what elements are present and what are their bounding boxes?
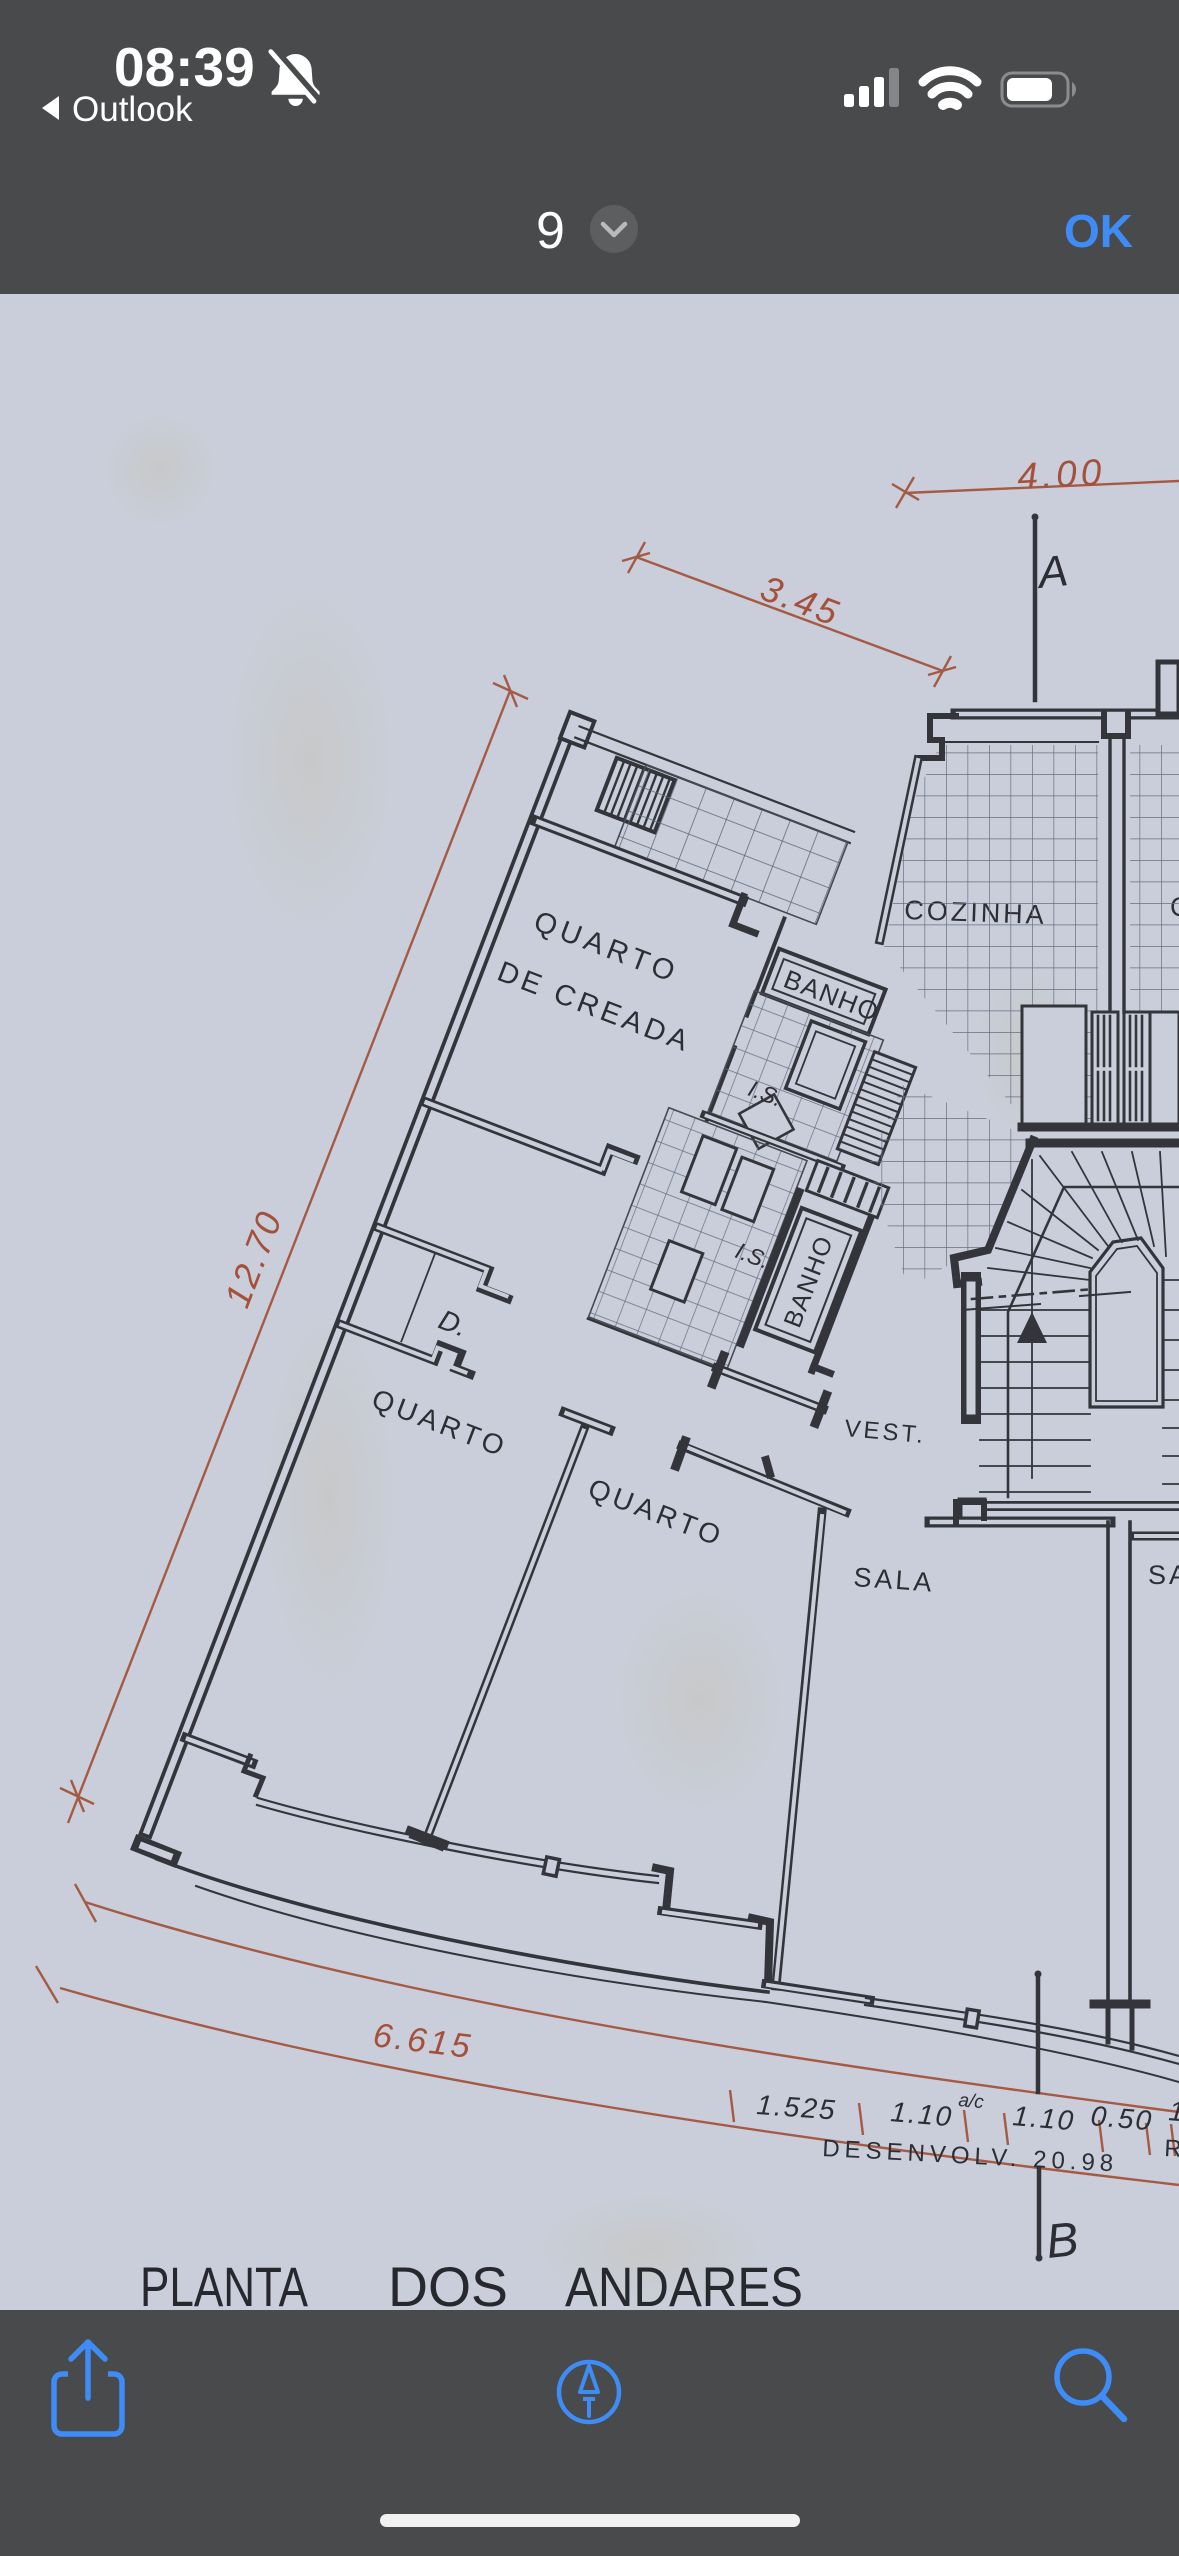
svg-text:ANDARES: ANDARES <box>565 2255 803 2318</box>
svg-text:DOS: DOS <box>388 2255 508 2318</box>
svg-text:08:39: 08:39 <box>114 36 255 98</box>
svg-text:1.10: 1.10 <box>1011 2100 1076 2136</box>
svg-text:a/c: a/c <box>958 2090 986 2113</box>
svg-text:PLANTA: PLANTA <box>140 2255 309 2318</box>
svg-text:0.50: 0.50 <box>1089 2100 1154 2136</box>
svg-text:1.525: 1.525 <box>756 2089 838 2126</box>
svg-text:R: R <box>1164 2135 1179 2163</box>
svg-text:1: 1 <box>1167 2095 1179 2127</box>
svg-text:SA: SA <box>1148 1560 1179 1590</box>
svg-text:SALA: SALA <box>853 1562 936 1598</box>
svg-text:4.00: 4.00 <box>1016 451 1106 497</box>
svg-text:1.10: 1.10 <box>889 2096 954 2132</box>
svg-text:Outlook: Outlook <box>72 90 193 129</box>
svg-text:B: B <box>1044 2213 1081 2269</box>
svg-text:OK: OK <box>1064 205 1133 257</box>
svg-text:9: 9 <box>536 202 565 260</box>
